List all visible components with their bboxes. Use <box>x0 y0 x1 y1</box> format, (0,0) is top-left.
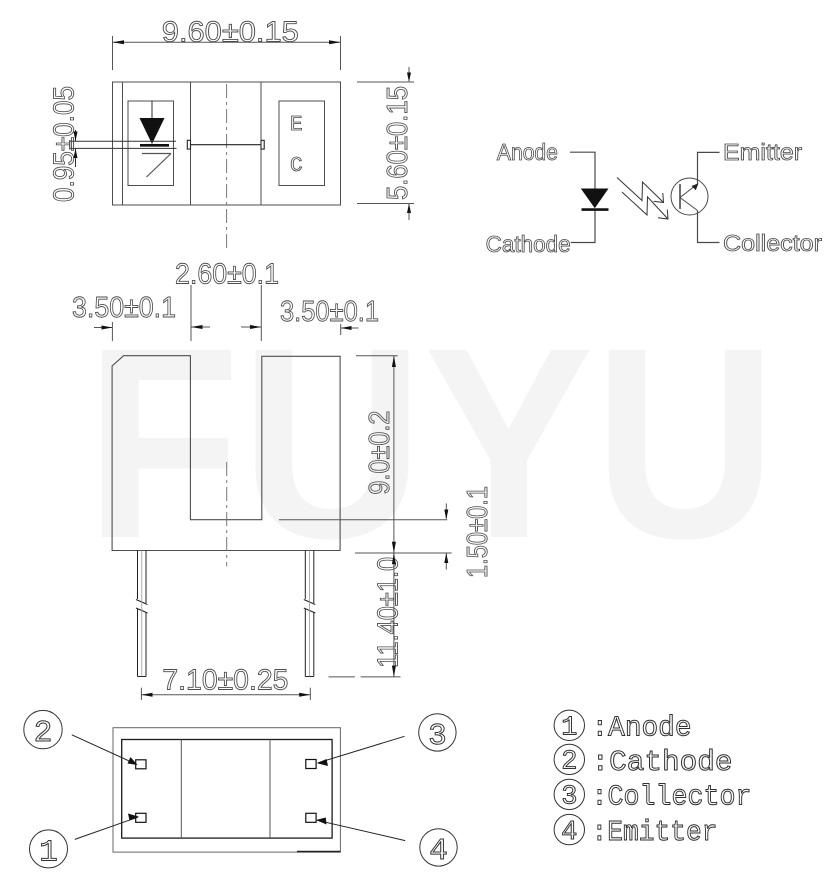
svg-text:C: C <box>290 155 303 178</box>
svg-text:7.10±0.25: 7.10±0.25 <box>162 665 288 697</box>
svg-text:3.50±0.1: 3.50±0.1 <box>72 292 176 324</box>
svg-text:4: 4 <box>561 818 577 848</box>
svg-text::Emitter: :Emitter <box>592 816 718 849</box>
svg-text::Collector: :Collector <box>592 781 752 814</box>
svg-text:2: 2 <box>34 716 53 751</box>
svg-text:Collector: Collector <box>723 230 822 256</box>
svg-text:5.60±0.15: 5.60±0.15 <box>382 86 414 200</box>
svg-text:Emitter: Emitter <box>723 139 802 165</box>
svg-text:FUYU: FUYU <box>85 291 777 595</box>
svg-text:E: E <box>290 114 303 137</box>
svg-text:3: 3 <box>428 719 447 754</box>
svg-text:Anode: Anode <box>497 139 558 165</box>
svg-text:0.95±0.05: 0.95±0.05 <box>49 86 81 202</box>
svg-text::Anode: :Anode <box>592 712 692 745</box>
svg-text:Cathode: Cathode <box>486 231 571 257</box>
svg-text:11.40±1.0: 11.40±1.0 <box>373 557 405 668</box>
svg-text:1: 1 <box>39 835 58 870</box>
svg-text:4: 4 <box>429 834 448 869</box>
svg-text:1.50±0.1: 1.50±0.1 <box>462 486 494 578</box>
svg-text:3: 3 <box>561 783 577 813</box>
svg-text:1: 1 <box>561 714 577 744</box>
svg-text:3.50±0.1: 3.50±0.1 <box>280 296 379 328</box>
svg-text:2: 2 <box>561 748 577 778</box>
svg-text:9.60±0.15: 9.60±0.15 <box>162 17 299 49</box>
svg-text:9.0±0.2: 9.0±0.2 <box>364 411 396 495</box>
svg-text::Cathode: :Cathode <box>592 746 733 779</box>
